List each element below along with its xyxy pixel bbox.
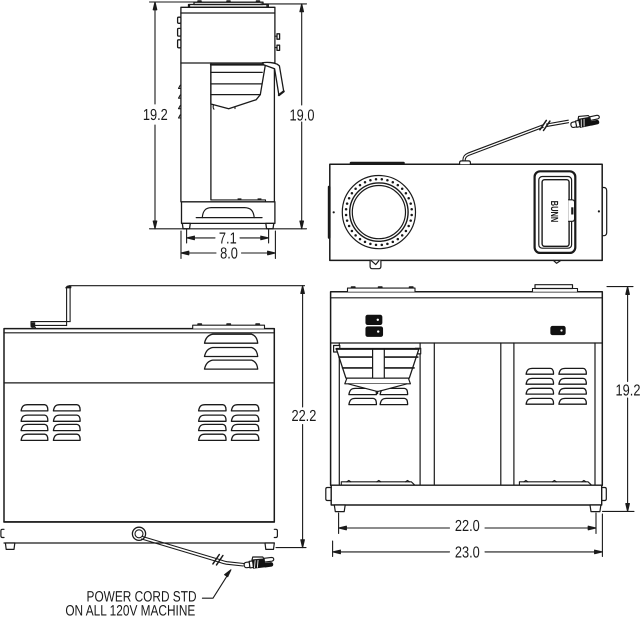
svg-text:23.0: 23.0	[455, 544, 480, 561]
svg-text:19.2: 19.2	[143, 107, 168, 124]
svg-text:19.2: 19.2	[616, 382, 640, 399]
svg-text:8.0: 8.0	[220, 245, 238, 262]
svg-text:22.2: 22.2	[291, 408, 316, 425]
svg-text:19.0: 19.0	[290, 108, 315, 125]
svg-text:ON ALL 120V MACHINE: ON ALL 120V MACHINE	[65, 602, 195, 618]
svg-text:BUNN: BUNN	[548, 201, 560, 223]
svg-text:22.0: 22.0	[455, 518, 480, 535]
